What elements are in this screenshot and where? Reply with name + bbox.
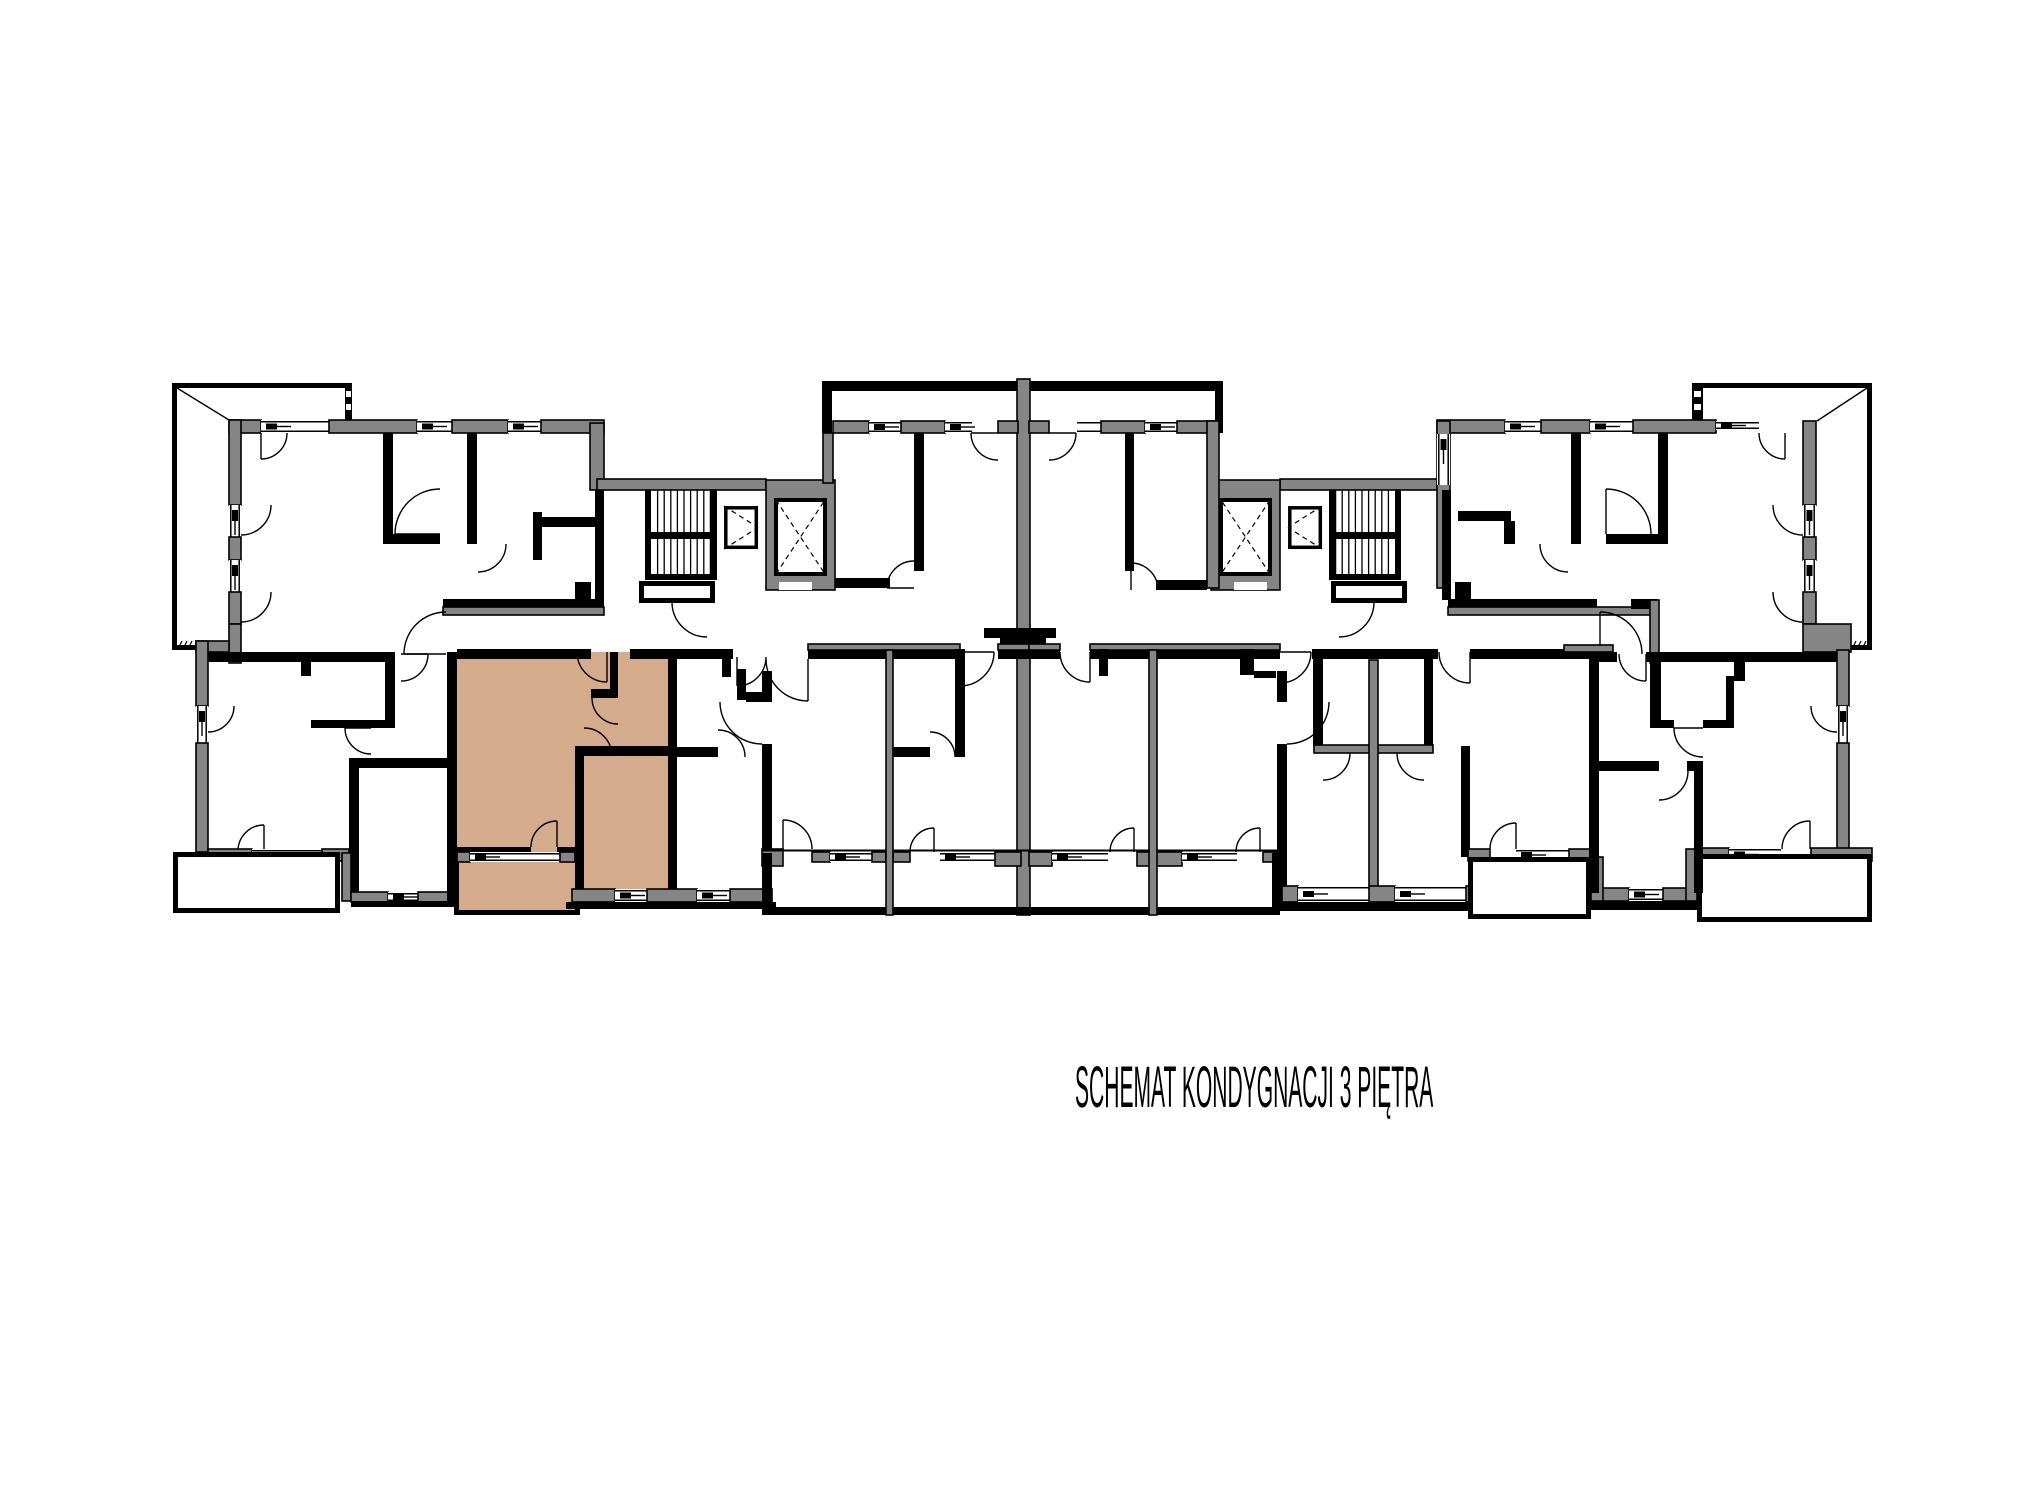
svg-text:SCHEMAT KONDYGNACJI 3 PIĘTRA: SCHEMAT KONDYGNACJI 3 PIĘTRA bbox=[1075, 1056, 1434, 1120]
